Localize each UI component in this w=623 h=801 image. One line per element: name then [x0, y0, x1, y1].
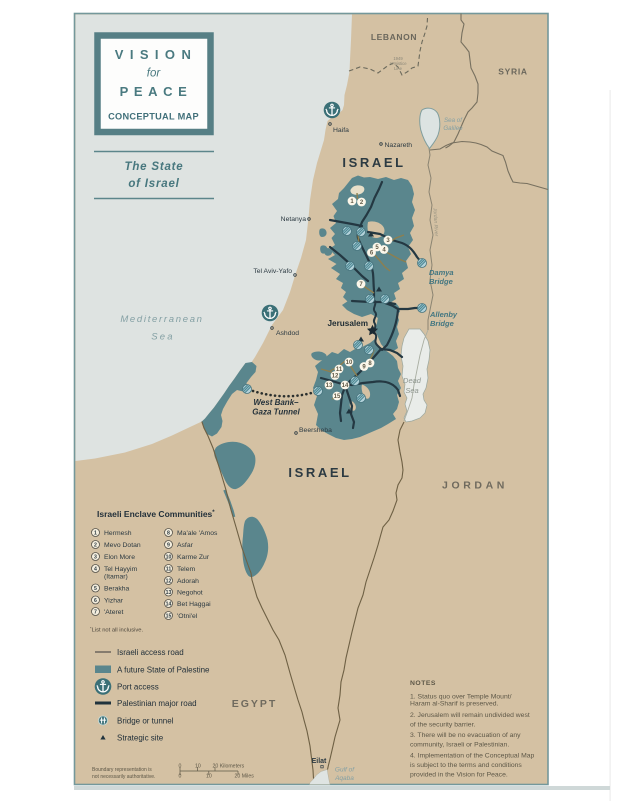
svg-text:Negohot: Negohot [177, 590, 203, 597]
svg-text:'Otni'el: 'Otni'el [177, 613, 198, 620]
svg-text:10: 10 [346, 360, 353, 366]
svg-text:15: 15 [166, 614, 172, 620]
svg-text:Karme Zur: Karme Zur [177, 554, 210, 561]
svg-text:community, Israeli or Palestin: community, Israeli or Palestinian. [410, 742, 509, 749]
svg-text:0: 0 [179, 764, 182, 770]
svg-text:12: 12 [166, 579, 172, 585]
svg-text:14: 14 [166, 602, 172, 608]
svg-text:2. Jerusalem will remain undiv: 2. Jerusalem will remain undivided west [410, 712, 530, 719]
svg-text:'Ateret: 'Ateret [104, 609, 124, 616]
svg-text:SYRIA: SYRIA [498, 67, 527, 77]
svg-text:5: 5 [94, 586, 97, 592]
svg-text:Netanya: Netanya [281, 216, 307, 223]
svg-text:Elon More: Elon More [104, 554, 135, 561]
svg-text:Telem: Telem [177, 566, 195, 573]
svg-text:Hermesh: Hermesh [104, 530, 132, 537]
svg-text:10: 10 [166, 555, 172, 561]
svg-text:Sea of: Sea of [444, 117, 463, 124]
svg-text:10: 10 [206, 774, 212, 780]
svg-text:Israeli access road: Israeli access road [117, 648, 184, 657]
svg-text:A future State of Palestine: A future State of Palestine [117, 666, 210, 675]
svg-text:1. Status quo over Temple Moun: 1. Status quo over Temple Mount/ [410, 694, 512, 701]
svg-text:Boundary representation is: Boundary representation is [92, 767, 152, 773]
svg-text:Ashdod: Ashdod [276, 330, 299, 337]
svg-text:EGYPT: EGYPT [232, 698, 278, 710]
svg-text:The State: The State [125, 161, 184, 173]
svg-text:Sea: Sea [151, 332, 175, 343]
svg-text:20 Kilometers: 20 Kilometers [213, 764, 245, 770]
svg-text:13: 13 [166, 590, 172, 596]
svg-text:20 Miles: 20 Miles [235, 774, 255, 780]
svg-text:Berakha: Berakha [104, 586, 130, 593]
svg-text:Sea: Sea [405, 386, 418, 395]
svg-text:Ma'ale 'Amos: Ma'ale 'Amos [177, 530, 218, 537]
svg-text:Nazareth: Nazareth [385, 142, 413, 149]
svg-text:7: 7 [94, 610, 97, 616]
svg-text:Haram al-Sharif is preserved.: Haram al-Sharif is preserved. [410, 701, 499, 708]
svg-text:1: 1 [94, 531, 97, 537]
svg-text:3. There will be no evacuation: 3. There will be no evacuation of any [410, 732, 521, 739]
svg-text:Line: Line [394, 66, 403, 71]
svg-text:Israeli Enclave Communities*: Israeli Enclave Communities* [97, 509, 215, 519]
svg-text:West Bank–: West Bank– [253, 398, 299, 407]
svg-text:ISRAEL: ISRAEL [342, 155, 405, 170]
svg-text:Port access: Port access [117, 683, 159, 692]
svg-text:Yizhar: Yizhar [104, 598, 124, 605]
svg-text:Aqaba: Aqaba [334, 775, 354, 782]
svg-text:Palestinian major road: Palestinian major road [117, 699, 197, 708]
svg-text:Adorah: Adorah [177, 578, 199, 585]
svg-text:PEACE: PEACE [120, 84, 193, 99]
svg-text:Haifa: Haifa [333, 127, 349, 134]
svg-text:Dead: Dead [403, 376, 422, 385]
svg-text:VISION: VISION [115, 47, 197, 62]
svg-text:12: 12 [332, 374, 339, 380]
svg-text:Jerusalem: Jerusalem [327, 319, 368, 328]
svg-text:2: 2 [94, 543, 97, 549]
svg-text:for: for [147, 68, 162, 80]
svg-text:15: 15 [334, 394, 341, 400]
svg-text:Gaza Tunnel: Gaza Tunnel [252, 408, 300, 417]
svg-text:Allenby: Allenby [429, 310, 458, 319]
svg-text:of the security barrier.: of the security barrier. [410, 722, 475, 729]
svg-text:ISRAEL: ISRAEL [288, 465, 351, 480]
svg-text:Bridge: Bridge [429, 277, 453, 286]
svg-text:Tel Aviv-Yafo: Tel Aviv-Yafo [253, 268, 292, 275]
svg-text:Bridge or tunnel: Bridge or tunnel [117, 717, 174, 726]
svg-text:Mevo Dotan: Mevo Dotan [104, 542, 141, 549]
svg-text:8: 8 [167, 531, 170, 537]
svg-text:6: 6 [94, 598, 97, 604]
svg-text:13: 13 [326, 383, 333, 389]
svg-text:Galilee: Galilee [443, 125, 463, 132]
svg-text:Beersheba: Beersheba [299, 427, 332, 434]
svg-text:Damya: Damya [429, 268, 454, 277]
svg-text:14: 14 [342, 383, 349, 389]
svg-text:Tel Hayyim: Tel Hayyim [104, 566, 138, 573]
svg-text:JORDAN: JORDAN [442, 480, 508, 492]
svg-text:0: 0 [179, 774, 182, 780]
svg-text:is subject to the terms and co: is subject to the terms and conditions [410, 762, 522, 769]
svg-text:Strategic site: Strategic site [117, 734, 164, 743]
svg-text:CONCEPTUAL MAP: CONCEPTUAL MAP [108, 112, 199, 122]
svg-text:Eilat: Eilat [312, 758, 327, 765]
svg-text:Asfar: Asfar [177, 542, 194, 549]
svg-text:not necessarily authoritative.: not necessarily authoritative. [92, 774, 155, 780]
svg-text:NOTES: NOTES [410, 680, 436, 687]
svg-text:11: 11 [166, 567, 172, 573]
svg-text:10: 10 [195, 764, 201, 770]
svg-text:Bet Haggai: Bet Haggai [177, 601, 211, 608]
svg-text:of Israel: of Israel [128, 178, 179, 190]
svg-text:provided in the Vision for Pea: provided in the Vision for Peace. [410, 772, 508, 779]
svg-text:4. Implementation of the Conce: 4. Implementation of the Conceptual Map [410, 753, 535, 760]
svg-text:Bridge: Bridge [430, 319, 454, 328]
svg-text:3: 3 [94, 555, 97, 561]
svg-text:(Itamar): (Itamar) [104, 574, 128, 581]
svg-text:9: 9 [167, 543, 170, 549]
svg-text:Gulf of: Gulf of [335, 767, 355, 774]
svg-text:Mediterranean: Mediterranean [120, 314, 203, 325]
svg-text:4: 4 [94, 567, 97, 573]
svg-text:*List not all inclusive.: *List not all inclusive. [90, 626, 144, 634]
svg-text:LEBANON: LEBANON [371, 32, 417, 42]
